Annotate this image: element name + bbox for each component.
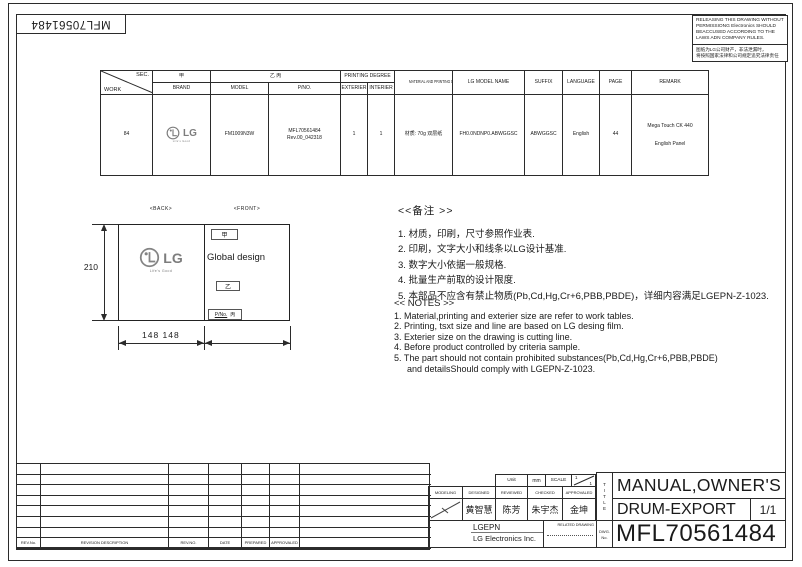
lg-tagline: Life's Good [173,141,190,144]
cell-material: 材质: 70g 双层纸 [395,95,453,176]
note-cn-1: 1. 材质，印刷，尺寸参照作业表. [398,227,728,243]
header-printing-degree: PRINTING DEGREE [341,71,395,83]
revision-header-prepared: PREPARED [242,538,270,549]
corner-work-label: WORK [104,87,121,93]
cell-remark: Mega Touch CK 440 English Panel [632,95,709,176]
revision-header-date: DATE [209,538,242,549]
doc-subtitle-cell: DRUM-EXPORT [612,498,751,521]
arrow-left-mid-icon [205,340,212,346]
note-cn-2: 2. 印刷，文字大小和线条以LG设计基准. [398,242,728,258]
lg-face-icon [166,126,180,140]
warning-text-en: RELEASING THIS DRAWING WITHOUT PERMISSIO… [693,16,787,45]
bing-marker: 丙 [230,311,235,318]
lg-logo-icon-panel: LG Life's Good [128,247,194,273]
notes-english: << NOTES >> 1. Material,printing and ext… [394,299,734,374]
cell-suffix: ABWGGSC [525,95,563,176]
lg-logo-icon: LG Life's Good [153,126,210,144]
lg-wordmark: LG [183,128,197,139]
header-page: PAGE [600,71,632,95]
header-model: MODEL [211,83,269,95]
height-dimension-label: 210 [70,262,98,272]
notes-english-title: << NOTES >> [394,299,734,310]
cell-page: 44 [600,95,632,176]
spec-table: SEC. WORK 甲 乙 丙 PRINTING DEGREE MATERIAL… [100,70,709,176]
company-cell: LGEPN LG Electronics Inc. [428,520,544,548]
notes-chinese-title: <<备注 >> [398,204,728,220]
cell-model: FM1009N3W [211,95,269,176]
cell-interier: 1 [368,95,395,176]
revision-header-no: REV.No. [17,538,41,549]
note-en-1: 1. Material,printing and exterier size a… [394,311,734,322]
doc-title-line1: MANUAL,OWNER'S [613,475,781,496]
warning-box: RELEASING THIS DRAWING WITHOUT PERMISSIO… [692,15,788,62]
dim-ext-line-mid [204,326,205,350]
rotated-part-number-box: MFL70561484 [16,14,126,34]
jia-marker-box: 甲 [211,229,238,240]
revision-header-approvaled: APPROVALED [270,538,300,549]
note-en-5-cont: and detailsShould comply with LGEPN-Z-10… [394,364,734,375]
header-lg-model-name: LG MODEL NAME [453,71,525,95]
pno-marker-box: P/No. 丙 [208,309,242,320]
company-name-1: LGEPN [429,521,543,532]
header-interier: INTERIER [368,83,395,95]
revision-table: REV.No. REVISION DESCRIPTION REV.NO. DAT… [16,463,430,550]
drawing-number-cell: MFL70561484 [612,520,786,548]
designed-name-cell: 黄智慧 [462,498,496,521]
cell-remark-line1: Mega Touch CK 440 [632,123,708,129]
note-en-5: 5. The part should not contain prohibite… [394,353,734,364]
related-drawing-cell: RELATED DRAWING [543,520,597,548]
front-panel-label: <FRONT> [204,204,290,214]
arrow-up-icon [101,224,107,231]
lg-face-icon [139,247,160,268]
revision-header-revno: REV.NO. [169,538,209,549]
width-dimension-label: 148 148 [140,330,182,340]
arrow-left-icon [119,340,126,346]
lg-wordmark: LG [163,250,182,266]
notes-chinese: <<备注 >> 1. 材质，印刷，尺寸参照作业表. 2. 印刷，文字大小和线条以… [398,204,728,304]
company-name-2: LG Electronics Inc. [429,533,543,543]
note-cn-4: 4. 批量生产前取的设计限度. [398,273,728,289]
cell-exterier: 1 [341,95,368,176]
dwg-no-label: DWG. No. [596,520,613,548]
cell-pno-line2: Rev.00_042318 [269,135,340,143]
pno-marker-label: P/No. [215,312,228,318]
cell-remark-line2: English Panel [632,141,708,147]
doc-title-cell: MANUAL,OWNER'S [612,472,786,499]
cell-work: 84 [101,95,153,176]
note-cn-3: 3. 数字大小依据一般规格. [398,258,728,274]
revision-empty-cell [17,464,41,475]
cell-brand: LG Life's Good [153,95,211,176]
signature-icon [429,499,462,520]
yi-marker-box: 乙 [216,281,240,291]
note-en-3: 3. Exterier size on the drawing is cutti… [394,332,734,343]
header-pno: P/NO. [269,83,341,95]
corner-sec-label: SEC. [136,72,149,78]
approvaled-name-cell: 金坤 [562,498,596,521]
revision-header-description: REVISION DESCRIPTION [41,538,169,549]
header-exterier: EXTERIER [341,83,368,95]
header-brand: BRAND [153,83,211,95]
warning-text-zh-2: 将按照国家法律和公司规定追究法律责任 [696,53,784,59]
corner-header-cell: SEC. WORK [101,71,153,95]
global-design-label: Global design [207,252,265,263]
drawing-number: MFL70561484 [613,520,776,548]
scale-numerator: 1 [575,475,578,480]
doc-title-line2: DRUM-EXPORT [613,501,736,519]
note-en-4: 4. Before product controlled by criteria… [394,342,734,353]
cell-language: English [563,95,600,176]
reviewed-name-cell: 陈芳 [495,498,528,521]
header-remark: REMARK [632,71,709,95]
lg-tagline: Life's Good [150,269,172,273]
header-language: LANGUAGE [563,71,600,95]
header-yibing: 乙 丙 [211,71,341,83]
arrow-right-mid-icon [197,340,204,346]
related-drawing-label: RELATED DRAWING [544,521,596,527]
arrow-right-icon [283,340,290,346]
related-drawing-dotted-line [547,535,593,536]
dim-ext-line-left [118,326,119,350]
checked-name-cell: 朱宇杰 [527,498,563,521]
title-vertical-label: T I T L E [596,472,613,521]
sheet-number-cell: 1/1 [750,498,786,521]
dim-line-horizontal [118,343,290,344]
cell-pno: MFL70561484 Rev.00_042318 [269,95,341,176]
header-jia: 甲 [153,71,211,83]
cell-pno-line1: MFL70561484 [269,128,340,136]
modeling-signature-cell [428,498,463,521]
panel-center-fold-line [204,225,205,320]
back-panel-label: <BACK> [118,204,204,214]
header-material: MATERIAL AND PRINTING DESCRIPTION [395,71,453,95]
dim-ext-line-right [290,326,291,350]
revision-header-blank [300,538,431,549]
dim-line-vertical [104,226,105,319]
arrow-down-icon [101,314,107,321]
header-suffix: SUFFIX [525,71,563,95]
drawing-sheet: MFL70561484 RELEASING THIS DRAWING WITHO… [0,0,802,567]
rotated-part-number: MFL70561484 [31,18,111,30]
note-en-2: 2. Printing, tsxt size and line are base… [394,321,734,332]
cell-lg-model-name: FH0.0NDNP0.ABWGGSC [453,95,525,176]
